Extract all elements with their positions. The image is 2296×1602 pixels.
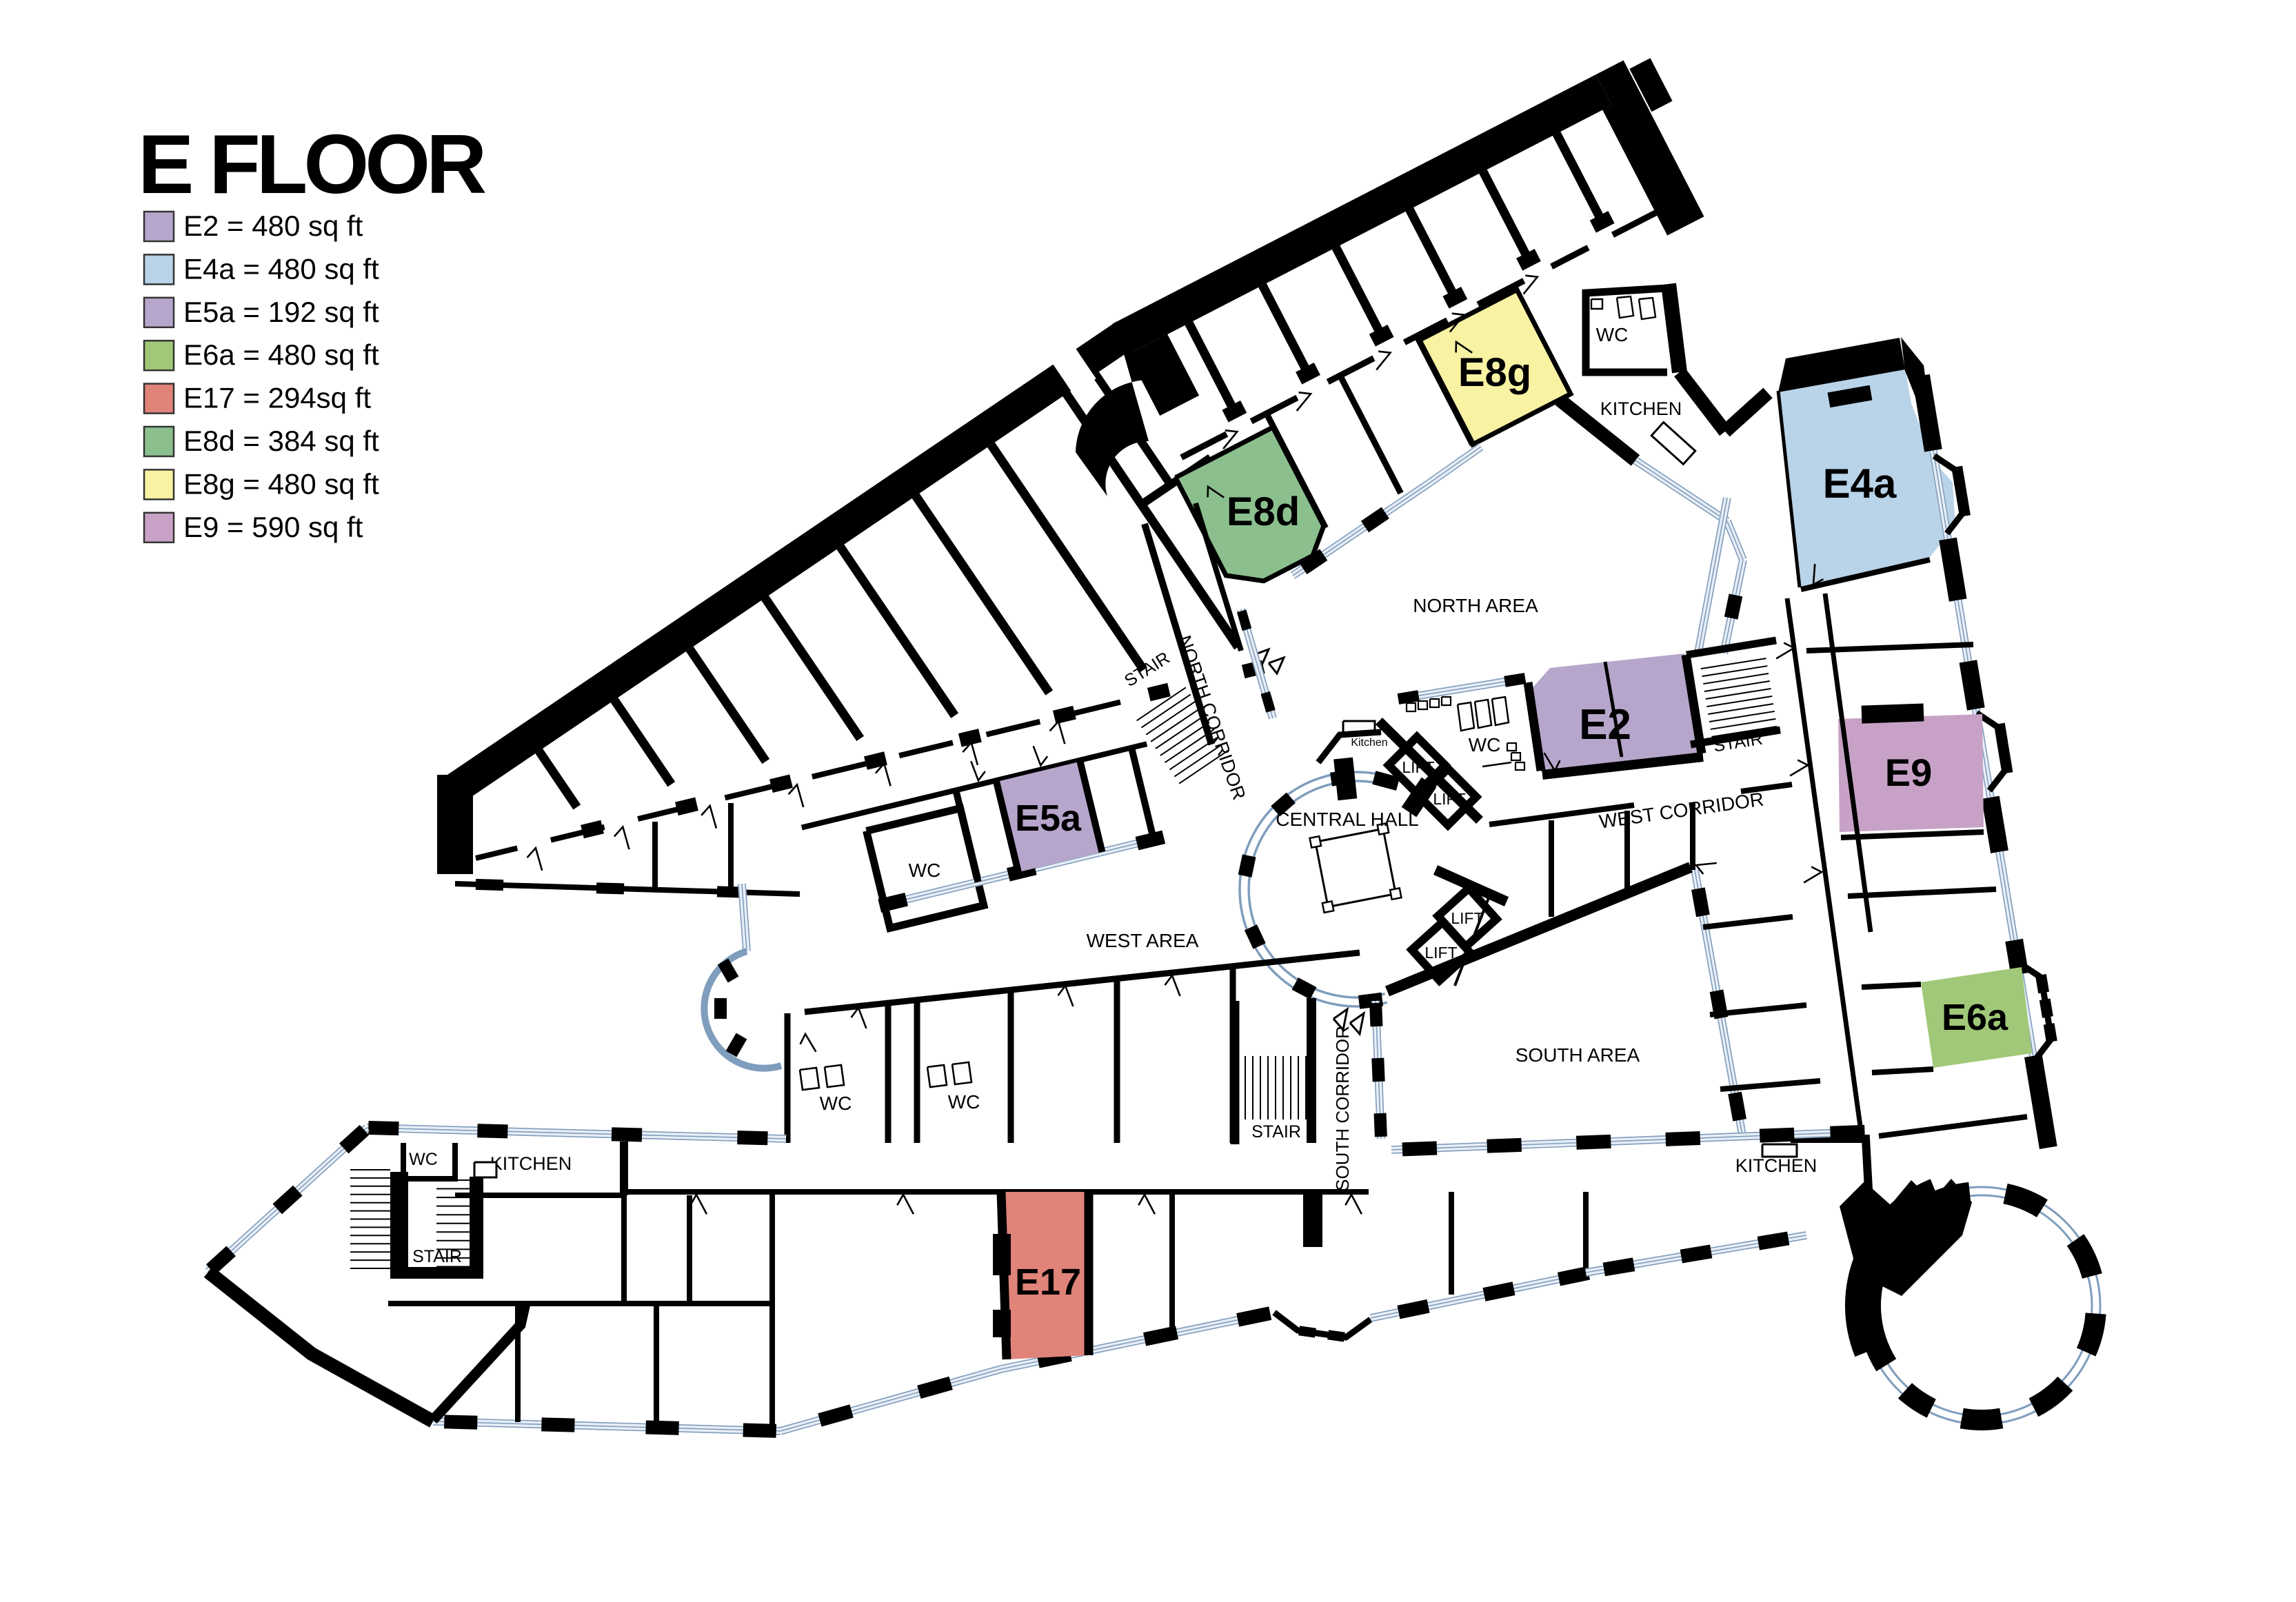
svg-text:WC: WC xyxy=(409,1150,438,1169)
svg-text:E8g: E8g xyxy=(1458,350,1531,395)
svg-text:KITCHEN: KITCHEN xyxy=(490,1153,572,1174)
svg-text:E FLOOR: E FLOOR xyxy=(138,117,485,211)
svg-text:E6a = 480 sq ft: E6a = 480 sq ft xyxy=(183,338,379,371)
svg-text:E2: E2 xyxy=(1579,701,1631,749)
svg-text:KITCHEN: KITCHEN xyxy=(1735,1155,1817,1176)
svg-text:E8d = 384 sq ft: E8d = 384 sq ft xyxy=(183,425,379,457)
svg-text:WC: WC xyxy=(1469,734,1501,756)
svg-text:WC: WC xyxy=(909,860,941,881)
svg-text:E5a: E5a xyxy=(1015,798,1082,839)
svg-text:E4a = 480 sq ft: E4a = 480 sq ft xyxy=(183,252,379,285)
svg-text:NORTH AREA: NORTH AREA xyxy=(1413,595,1538,616)
svg-text:SOUTH CORRIDOR: SOUTH CORRIDOR xyxy=(1332,1026,1353,1191)
svg-text:E17: E17 xyxy=(1015,1261,1081,1303)
svg-text:CENTRAL HALL: CENTRAL HALL xyxy=(1276,809,1418,830)
svg-text:E5a = 192 sq ft: E5a = 192 sq ft xyxy=(183,296,379,328)
svg-text:E17 = 294sq ft: E17 = 294sq ft xyxy=(183,382,371,414)
svg-text:KITCHEN: KITCHEN xyxy=(1600,398,1682,419)
svg-text:E6a: E6a xyxy=(1942,997,2008,1038)
svg-text:E2 = 480 sq ft: E2 = 480 sq ft xyxy=(183,210,363,242)
svg-text:STAIR: STAIR xyxy=(1251,1122,1301,1142)
svg-text:E8g = 480 sq ft: E8g = 480 sq ft xyxy=(183,467,379,500)
svg-text:WC: WC xyxy=(948,1091,980,1113)
svg-text:WEST AREA: WEST AREA xyxy=(1087,930,1199,951)
svg-text:SOUTH AREA: SOUTH AREA xyxy=(1515,1044,1640,1066)
svg-text:WC: WC xyxy=(820,1093,852,1114)
svg-text:Kitchen: Kitchen xyxy=(1351,737,1387,749)
svg-text:E9: E9 xyxy=(1885,751,1933,794)
svg-text:STAIR: STAIR xyxy=(412,1247,462,1266)
svg-text:E4a: E4a xyxy=(1823,460,1897,507)
svg-text:E9 = 590 sq ft: E9 = 590 sq ft xyxy=(183,511,363,543)
svg-text:WC: WC xyxy=(1596,324,1629,345)
svg-text:E8d: E8d xyxy=(1227,489,1300,534)
